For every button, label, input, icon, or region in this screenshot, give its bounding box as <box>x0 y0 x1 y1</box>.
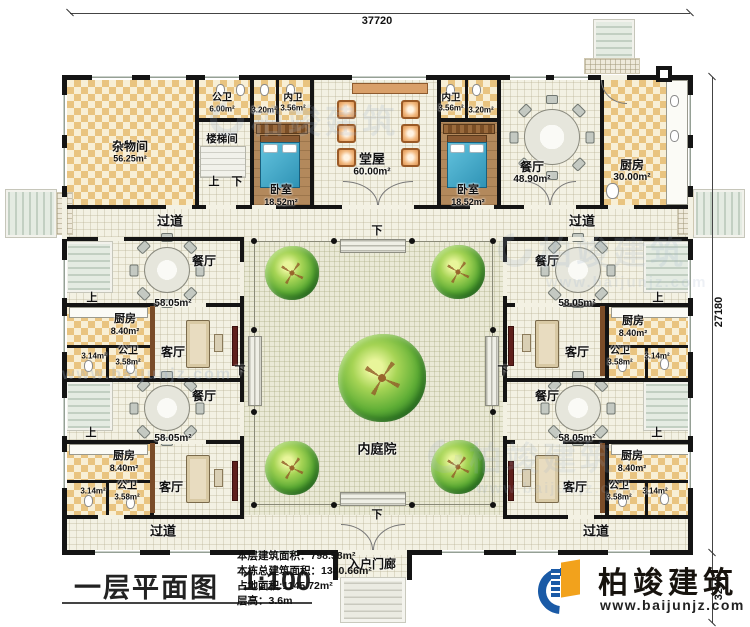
label-dining-ne: 餐厅48.90m² <box>513 160 550 186</box>
label-stair-hall: 楼梯间 <box>206 133 238 145</box>
label-inner-wc-left: 内卫3.56m² <box>280 93 305 114</box>
label-up-e2: 上 <box>652 424 663 440</box>
wardrobe <box>256 124 308 134</box>
label-wc-e2: 公卫3.58m² <box>606 480 631 501</box>
window <box>352 75 426 80</box>
label-corridor-nw: 过道 <box>157 213 183 228</box>
label-hall: 堂屋60.00m² <box>353 151 390 178</box>
column-dot <box>251 327 257 333</box>
door-opening <box>568 237 594 241</box>
wall <box>276 75 279 122</box>
chair <box>607 264 616 276</box>
label-wc-320-right: 3.20m² <box>468 105 493 114</box>
chair <box>510 131 519 143</box>
stat-floor-height: 层高：3.6m <box>237 594 372 609</box>
door-opening <box>240 262 244 296</box>
wall <box>465 75 468 122</box>
sofa <box>535 320 559 368</box>
label-dining-area-e2: 58.05m² <box>558 433 595 445</box>
door-opening <box>608 205 634 209</box>
door-opening <box>98 515 124 519</box>
window <box>688 452 693 488</box>
label-down-stairhall: 下 <box>232 173 243 189</box>
door-opening <box>62 197 67 239</box>
column-dot <box>251 409 257 415</box>
wall <box>605 440 609 515</box>
wall <box>106 480 109 515</box>
chair <box>130 264 139 276</box>
wall <box>605 303 609 378</box>
toilet-icon <box>84 360 93 372</box>
toilet-icon <box>260 84 269 96</box>
label-up-e1: 上 <box>653 289 664 305</box>
column-dot <box>490 238 496 244</box>
window <box>170 550 210 555</box>
label-kitchen-e2: 厨房8.40m² <box>618 450 647 474</box>
label-wc-small-e1: 3.14m² <box>644 351 669 360</box>
label-courtyard: 内庭院 <box>357 441 396 456</box>
label-living-e2: 客厅 <box>563 480 587 494</box>
column-dot <box>490 327 496 333</box>
label-down-court-w: 下 <box>235 362 246 378</box>
window <box>62 452 67 488</box>
wall <box>62 378 244 382</box>
column-dot <box>331 238 337 244</box>
label-dining-w1: 餐厅 <box>192 254 216 268</box>
door-opening <box>688 197 693 239</box>
door-opening <box>515 440 563 444</box>
wall <box>62 515 244 519</box>
label-wc-w1: 公卫3.58m² <box>115 345 140 366</box>
column-dot <box>251 238 257 244</box>
hall-chair <box>337 124 356 143</box>
window <box>688 148 693 186</box>
chair <box>196 402 205 414</box>
corner-column <box>656 66 672 82</box>
label-dining-e1: 餐厅 <box>535 254 559 268</box>
label-dining-e2: 餐厅 <box>535 389 559 403</box>
pillow <box>282 144 297 153</box>
cabinet <box>150 443 155 513</box>
door-opening <box>503 262 507 296</box>
window <box>205 75 239 80</box>
label-down-court-n: 下 <box>372 222 383 238</box>
dimension-top-value: 37720 <box>362 15 393 27</box>
dining-table <box>524 109 580 165</box>
wall <box>310 75 314 209</box>
wall <box>645 480 648 515</box>
window <box>62 260 67 298</box>
dining-table <box>144 385 190 431</box>
label-up-stairhall: 上 <box>209 173 220 189</box>
floor-plan-canvas: 37720 27180 3240 <box>0 0 750 627</box>
sink-icon <box>236 84 245 96</box>
tree <box>265 246 319 300</box>
label-living-w1: 客厅 <box>161 345 185 359</box>
tree <box>431 440 485 494</box>
column-dot <box>409 502 415 508</box>
label-up-w1: 上 <box>87 289 98 305</box>
label-public-wc: 公卫6.00m² <box>209 92 234 113</box>
stat-total-area: 本栋总建筑面积：1340.66m² <box>237 564 372 579</box>
label-wc-small-w1: 3.14m² <box>81 351 106 360</box>
label-inner-wc-right: 内卫3.56m² <box>438 93 463 114</box>
door-opening <box>206 205 236 209</box>
window <box>688 95 693 135</box>
fridge-icon <box>606 183 619 199</box>
wall <box>195 118 254 122</box>
stair-e2 <box>644 382 690 430</box>
tv-cabinet <box>232 461 238 501</box>
label-wc-e1: 公卫3.58m² <box>607 345 632 366</box>
hall-chair <box>401 148 420 167</box>
hall-chair <box>401 124 420 143</box>
chair <box>607 402 616 414</box>
window <box>688 260 693 298</box>
label-kitchen-w1: 厨房8.40m² <box>111 313 140 337</box>
coffee-table <box>522 469 531 487</box>
wall <box>62 237 244 241</box>
label-bedroom-left: 卧室18.52m² <box>264 184 298 208</box>
door-opening <box>166 205 192 209</box>
stat-floor-area: 本层建筑面积：798.58m² <box>237 549 372 564</box>
brand-url: www.baijunjz.com <box>600 597 745 613</box>
tv-cabinet <box>232 326 238 366</box>
wardrobe <box>443 124 495 134</box>
door-opening <box>568 515 594 519</box>
wall <box>645 345 648 378</box>
label-dining-area-w1: 58.05m² <box>154 298 191 310</box>
toilet-icon <box>84 495 93 507</box>
hall-chair <box>401 100 420 119</box>
label-storage: 杂物间56.25m² <box>112 140 148 165</box>
tv-cabinet <box>508 461 514 501</box>
column-dot <box>490 502 496 508</box>
door-opening <box>98 237 124 241</box>
coffee-table <box>214 469 223 487</box>
cabinet <box>150 306 155 376</box>
pillow <box>263 144 278 153</box>
dimension-line-top <box>70 13 690 14</box>
wall <box>503 378 693 382</box>
stat-footprint-area: 占地面积:1145.72m² <box>237 579 372 594</box>
tree-large <box>338 334 426 422</box>
window <box>95 550 140 555</box>
label-wc-w2: 公卫3.58m² <box>114 480 139 501</box>
label-bedroom-right: 卧室18.52m² <box>451 184 485 208</box>
logo-tower-icon <box>551 567 560 597</box>
courtyard-step-south <box>340 492 406 506</box>
pillow <box>469 144 484 153</box>
window <box>554 75 588 80</box>
hall-chair <box>337 100 356 119</box>
door-opening <box>503 402 507 436</box>
wall <box>600 75 604 209</box>
window <box>608 550 650 555</box>
courtyard-step-west <box>248 336 262 406</box>
pillow <box>450 144 465 153</box>
chair <box>130 402 139 414</box>
window <box>516 550 558 555</box>
label-corridor-sw: 过道 <box>150 523 176 538</box>
column-dot <box>331 502 337 508</box>
dining-table <box>144 247 190 293</box>
window <box>62 148 67 186</box>
label-up-w2: 上 <box>86 424 97 440</box>
label-down-court-e: 下 <box>498 362 509 378</box>
window <box>688 398 693 436</box>
wall <box>497 75 501 209</box>
window <box>150 75 186 80</box>
exterior-stair-left <box>6 190 56 237</box>
chair <box>586 131 595 143</box>
window <box>92 75 132 80</box>
door-opening <box>524 205 576 209</box>
wall <box>437 118 501 122</box>
label-dining-area-w2: 58.05m² <box>154 433 191 445</box>
wall <box>503 237 693 241</box>
window <box>688 316 693 352</box>
label-wc-320-left: 3.20m² <box>251 105 276 114</box>
door-opening <box>240 402 244 436</box>
window <box>62 95 67 135</box>
chair <box>541 402 550 414</box>
dining-table <box>555 385 601 431</box>
label-living-w2: 客厅 <box>159 480 183 494</box>
logo-building-icon <box>561 559 580 597</box>
stove-icon <box>670 130 679 142</box>
brand-name: 柏竣建筑 <box>598 558 738 602</box>
wall <box>250 75 254 209</box>
sofa <box>186 320 210 368</box>
courtyard-step-north <box>340 239 406 253</box>
stair-e1 <box>644 242 690 292</box>
coffee-table <box>214 334 223 352</box>
cabinet <box>600 443 605 513</box>
door-opening <box>342 205 414 209</box>
label-dining-area-e1: 58.05m² <box>558 298 595 310</box>
sofa <box>186 455 210 503</box>
label-corridor-se: 过道 <box>583 523 609 538</box>
tv-cabinet <box>508 326 514 366</box>
label-wc-small-e2: 3.14m² <box>642 486 667 495</box>
toilet-icon <box>472 84 481 96</box>
wall <box>106 345 109 378</box>
wall-porch <box>407 550 412 580</box>
door-opening <box>515 303 563 307</box>
column-dot <box>490 409 496 415</box>
label-kitchen-w2: 厨房8.40m² <box>110 450 139 474</box>
window <box>62 316 67 352</box>
window <box>62 398 67 436</box>
window <box>442 550 484 555</box>
plan-title: 一层平面图 <box>74 566 219 605</box>
label-down-court-s: 下 <box>372 506 383 522</box>
dining-table <box>555 247 601 293</box>
wall <box>503 515 693 519</box>
coffee-table <box>522 334 531 352</box>
label-dining-w2: 餐厅 <box>192 389 216 403</box>
area-stats: 本层建筑面积：798.58m² 本栋总建筑面积：1340.66m² 占地面积:1… <box>237 549 372 609</box>
sink-icon <box>670 95 679 107</box>
label-kitchen-e1: 厨房8.40m² <box>619 315 648 339</box>
label-corridor-ne: 过道 <box>569 213 595 228</box>
column-dot <box>251 502 257 508</box>
dimension-right-value: 27180 <box>713 297 725 328</box>
cabinet <box>600 306 605 376</box>
exterior-stair-right <box>694 190 744 237</box>
tree <box>265 441 319 495</box>
stair-landing-top <box>584 58 640 74</box>
window <box>510 75 546 80</box>
sideboard <box>352 83 428 94</box>
tree <box>431 245 485 299</box>
wall <box>195 75 199 209</box>
label-living-e1: 客厅 <box>565 345 589 359</box>
stair-w2 <box>66 382 112 430</box>
column-dot <box>409 238 415 244</box>
chair <box>546 95 558 104</box>
label-kitchen-ne: 厨房30.00m² <box>613 158 650 184</box>
sofa <box>535 455 559 503</box>
label-wc-small-w2: 3.14m² <box>80 486 105 495</box>
stair-w1 <box>66 242 112 292</box>
